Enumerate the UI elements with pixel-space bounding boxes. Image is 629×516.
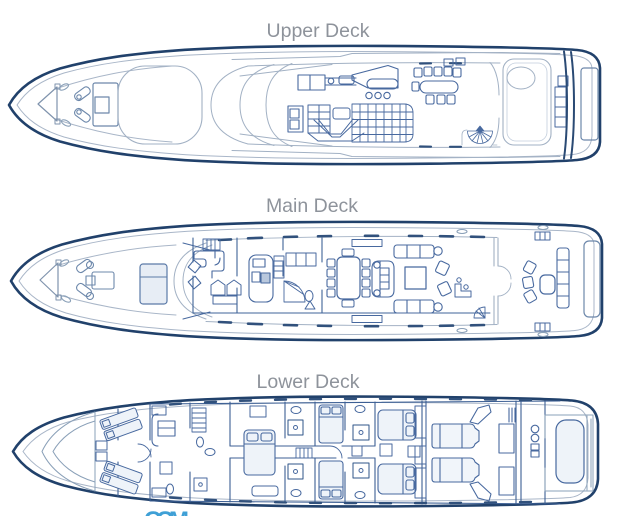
svg-text:Main Deck: Main Deck (266, 195, 358, 217)
svg-text:COM: COM (144, 507, 190, 516)
svg-text:Lower Deck: Lower Deck (257, 371, 360, 393)
svg-text:Upper Deck: Upper Deck (267, 20, 370, 42)
